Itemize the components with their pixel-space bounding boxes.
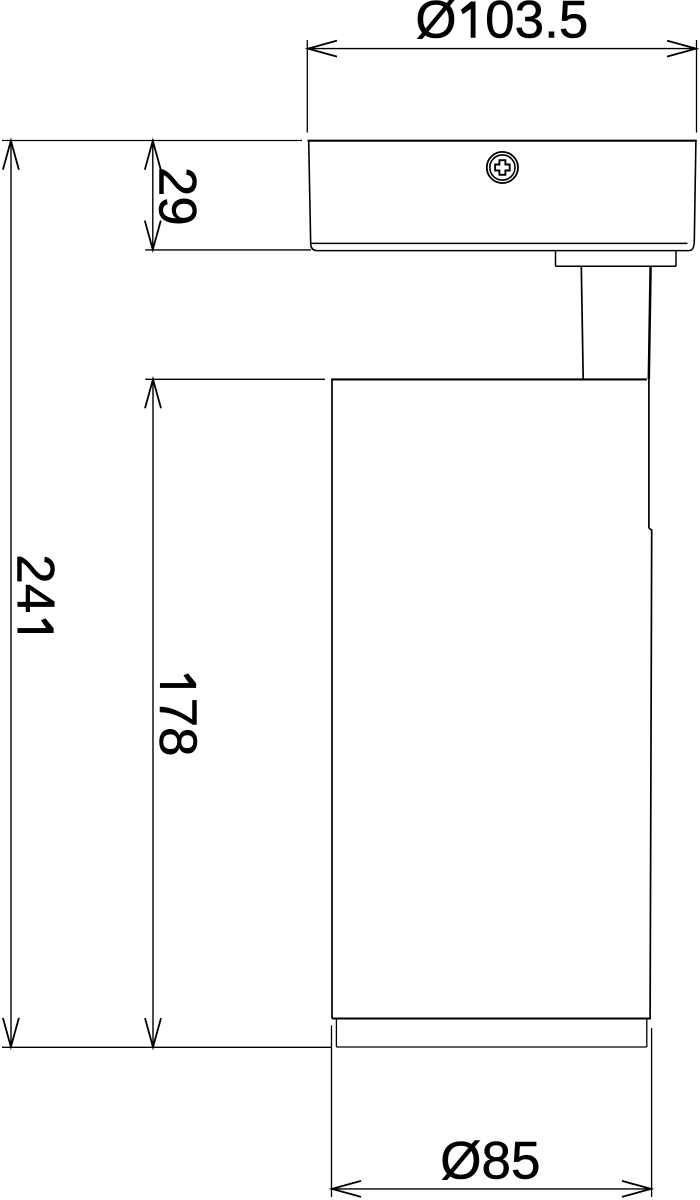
svg-text:03.5: 03.5 [485, 0, 588, 50]
svg-text:Ø: Ø [415, 0, 456, 50]
svg-text:29: 29 [148, 167, 207, 226]
svg-text:24: 24 [6, 554, 65, 613]
svg-text:78: 78 [148, 698, 207, 757]
svg-text:Ø85: Ø85 [440, 1131, 540, 1190]
